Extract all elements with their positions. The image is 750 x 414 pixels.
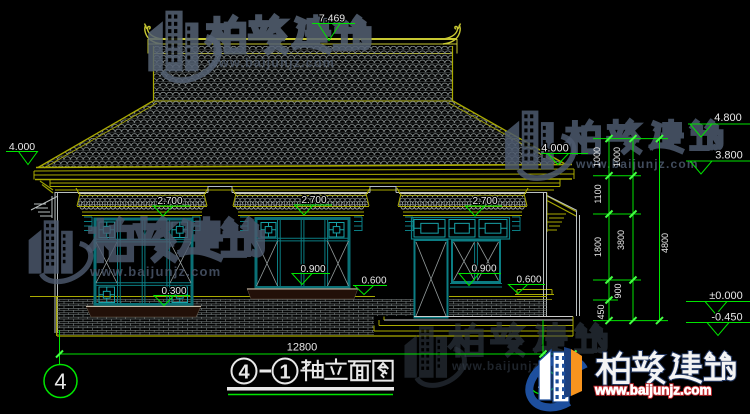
svg-text:900: 900 [613,283,623,298]
svg-text:1100: 1100 [593,184,603,203]
svg-text:0.600: 0.600 [516,275,541,286]
svg-text:1000: 1000 [612,147,622,167]
svg-text:7.469: 7.469 [319,13,345,25]
svg-text:4.000: 4.000 [541,143,569,155]
svg-text:2.700: 2.700 [301,195,326,206]
svg-text:-0.450: -0.450 [711,312,742,324]
svg-text:1: 1 [279,362,290,384]
svg-text:2.700: 2.700 [157,196,182,207]
svg-text:4: 4 [54,369,66,394]
svg-text:3800: 3800 [616,230,626,250]
svg-text:4800: 4800 [660,233,670,253]
svg-text:3.800: 3.800 [715,150,743,162]
svg-text:4: 4 [238,362,250,384]
svg-text:0.900: 0.900 [471,264,496,275]
svg-text:±0.000: ±0.000 [709,290,743,302]
svg-text:1000: 1000 [592,147,602,167]
svg-text:1800: 1800 [593,237,603,257]
svg-text:www.baijunjz.com: www.baijunjz.com [594,383,712,398]
svg-text:4.800: 4.800 [714,112,742,124]
svg-text:www.baijunjz.com: www.baijunjz.com [207,56,335,70]
svg-text:12800: 12800 [287,342,318,354]
svg-text:450: 450 [596,304,606,319]
svg-text:0.600: 0.600 [361,276,386,287]
svg-text:www.baijunjz.com: www.baijunjz.com [89,264,221,279]
svg-text:2.700: 2.700 [472,196,497,207]
